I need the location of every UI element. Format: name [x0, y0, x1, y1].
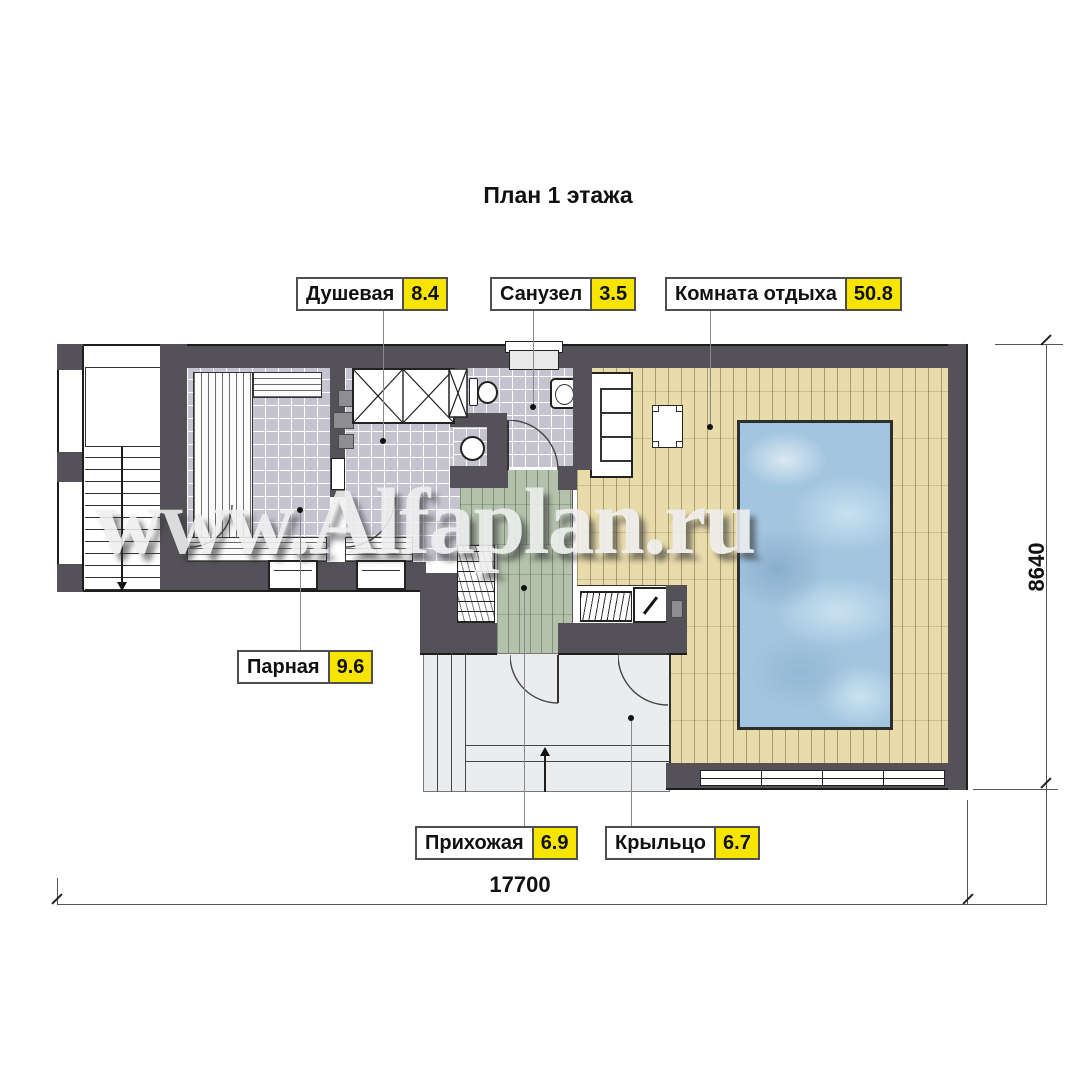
leader-wc: [533, 307, 534, 407]
porch-step-line: [465, 745, 670, 746]
lounge-window: [700, 770, 945, 786]
wall-wc-lounge: [573, 368, 592, 470]
coffee-table: [652, 405, 683, 448]
porch-step-line: [465, 653, 466, 792]
heater-grille: [580, 591, 632, 622]
room-area: 6.7: [714, 828, 758, 858]
door-arc-hall-porch: [510, 655, 559, 704]
room-area: 50.8: [845, 279, 900, 309]
extension-line-top: [995, 344, 1063, 345]
panel-switch-icon: [643, 596, 658, 614]
washbasin: [460, 436, 485, 461]
shower-tray: [352, 368, 455, 424]
leader-porch: [631, 718, 632, 826]
entrance-arrow: [540, 747, 550, 756]
door-arc-wc: [508, 420, 560, 472]
sofa: [590, 372, 633, 478]
room-label-shower: Душевая 8.4: [296, 277, 448, 311]
marker-lounge: [707, 424, 713, 430]
watermark: www.Alfaplan.ru: [95, 468, 1015, 576]
sauna-stove-stone: [333, 412, 354, 429]
toilet-bowl: [477, 381, 498, 404]
sauna-bench-top: [253, 372, 322, 398]
wall-porch-top: [558, 623, 687, 655]
wall-knob: [671, 600, 683, 618]
porch-step-line: [465, 761, 670, 762]
sauna-stove-stone: [338, 434, 354, 449]
leader-steam: [300, 510, 301, 650]
room-name: Прихожая: [417, 828, 532, 858]
room-name: Санузел: [492, 279, 590, 309]
dimension-height: 8640: [1007, 535, 1067, 599]
wall-pier: [57, 564, 83, 592]
extension-line-left: [57, 878, 58, 905]
room-name: Душевая: [298, 279, 402, 309]
stairs-divider-line: [82, 346, 84, 590]
floor-plan-page: План 1 этажа: [0, 0, 1080, 1080]
stair-down-arrow: [117, 582, 127, 591]
wall-pier: [57, 452, 83, 482]
leader-hall: [524, 588, 525, 826]
room-name: Парная: [239, 652, 328, 682]
wall-hall-bottom: [420, 623, 497, 655]
room-name: Комната отдыха: [667, 279, 845, 309]
room-area: 3.5: [590, 279, 634, 309]
room-label-porch: Крыльцо 6.7: [605, 826, 760, 860]
marker-shower: [380, 438, 386, 444]
room-label-lounge: Комната отдыха 50.8: [665, 277, 902, 311]
extension-line-bottom: [973, 789, 1058, 790]
room-label-steam: Парная 9.6: [237, 650, 373, 684]
shower-door-panel: [448, 368, 468, 418]
room-label-wc: Санузел 3.5: [490, 277, 636, 311]
room-name: Крыльцо: [607, 828, 714, 858]
marker-porch: [628, 715, 634, 721]
leader-shower: [383, 307, 384, 441]
entrance-arrow-line: [544, 756, 546, 792]
dimension-width: 17700: [420, 872, 620, 898]
room-area: 8.4: [402, 279, 446, 309]
room-area: 9.6: [328, 652, 372, 682]
dimension-tick: [962, 893, 973, 904]
wall-top: [160, 344, 968, 368]
leader-lounge: [710, 307, 711, 427]
porch-partition: [669, 655, 671, 763]
porch-step-line: [437, 653, 438, 792]
page-title: План 1 этажа: [408, 182, 708, 209]
electrical-panel: [633, 587, 668, 623]
dimension-line-vertical: [1046, 345, 1047, 905]
wall-pier: [57, 344, 83, 370]
dimension-line-horizontal: [57, 904, 1047, 905]
marker-steam: [297, 507, 303, 513]
stair-landing: [85, 367, 161, 447]
door-arc-porch-lounge: [618, 655, 669, 706]
porch-step-line: [451, 653, 452, 792]
room-area: 6.9: [532, 828, 576, 858]
marker-wc: [530, 404, 536, 410]
wc-window: [509, 350, 559, 370]
extension-line-right: [967, 800, 968, 905]
marker-hall: [521, 585, 527, 591]
room-label-hall: Прихожая 6.9: [415, 826, 578, 860]
